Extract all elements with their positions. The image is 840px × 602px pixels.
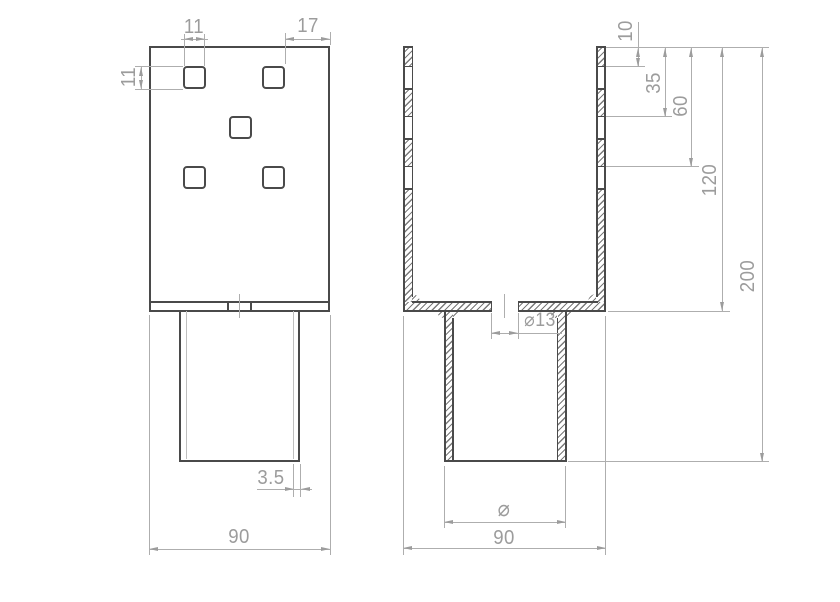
base-hole-left-edge bbox=[491, 301, 493, 312]
arrowhead bbox=[403, 546, 412, 550]
hole-edge-tick bbox=[596, 88, 606, 90]
extension-line bbox=[608, 311, 730, 312]
dim-label-hole2: 35 bbox=[643, 55, 665, 111]
dimension-line bbox=[444, 522, 566, 523]
hole-edge-tick bbox=[596, 116, 606, 118]
dim-label-tube-diameter: ⌀ bbox=[476, 498, 532, 520]
side-section-view: 10 35 60 120 200 ⌀13 bbox=[0, 0, 840, 602]
tube-right-outer-edge bbox=[565, 311, 567, 461]
base-inner-line-left bbox=[412, 301, 491, 303]
base-inner-line-right bbox=[518, 301, 598, 303]
tube-left-outer-edge bbox=[444, 311, 446, 461]
arrowhead bbox=[720, 48, 724, 57]
hole-edge-tick bbox=[403, 166, 413, 168]
hole-edge-tick bbox=[596, 166, 606, 168]
tube-left-inner-edge bbox=[452, 318, 454, 461]
tube-bottom-edge bbox=[444, 460, 568, 462]
arrowhead bbox=[689, 48, 693, 57]
arrowhead bbox=[760, 453, 764, 462]
hole-edge-tick bbox=[403, 138, 413, 140]
arrowhead bbox=[444, 520, 453, 524]
hole-edge-tick bbox=[403, 116, 413, 118]
right-wall-top-cap bbox=[596, 46, 606, 48]
centerline bbox=[504, 294, 505, 318]
extension-line bbox=[568, 461, 769, 462]
right-wall-inner-edge bbox=[596, 46, 598, 297]
dim-label-side-width: 90 bbox=[476, 527, 532, 549]
arrowhead bbox=[491, 331, 500, 335]
arrowhead bbox=[689, 158, 693, 167]
extension-line bbox=[403, 316, 404, 555]
dimension-line bbox=[491, 333, 562, 334]
arrowhead bbox=[557, 520, 566, 524]
dimension-line bbox=[665, 47, 666, 117]
arrowhead bbox=[720, 302, 724, 311]
hole-edge-tick bbox=[403, 88, 413, 90]
dimension-line bbox=[722, 47, 723, 311]
left-wall-outer-edge bbox=[403, 46, 405, 312]
arrowhead bbox=[760, 48, 764, 57]
technical-drawing-canvas: 11 17 11 3.5 90 bbox=[0, 0, 840, 602]
extension-line bbox=[606, 166, 699, 167]
tube-right-inner-edge bbox=[557, 318, 559, 461]
base-under-line-left bbox=[403, 310, 491, 312]
dim-label-hole1: 10 bbox=[615, 3, 637, 59]
right-wall-outer-edge bbox=[604, 46, 606, 312]
dim-label-height: 200 bbox=[737, 248, 759, 304]
hole-edge-tick bbox=[596, 138, 606, 140]
arrowhead bbox=[597, 546, 606, 550]
extension-line bbox=[491, 313, 492, 339]
dim-label-center-hole: ⌀13 bbox=[512, 310, 568, 332]
dimension-line bbox=[762, 47, 763, 462]
fillet-tube-left-in bbox=[453, 311, 460, 318]
extension-line bbox=[605, 316, 606, 555]
dim-label-hole3: 60 bbox=[670, 78, 692, 134]
hole-edge-tick bbox=[403, 66, 413, 68]
hole-edge-tick bbox=[596, 188, 606, 190]
hole-edge-tick bbox=[596, 66, 606, 68]
dim-label-depth: 120 bbox=[699, 152, 721, 208]
hole-edge-tick bbox=[403, 188, 413, 190]
left-wall-top-cap bbox=[403, 46, 413, 48]
left-wall-inner-edge bbox=[412, 46, 414, 297]
